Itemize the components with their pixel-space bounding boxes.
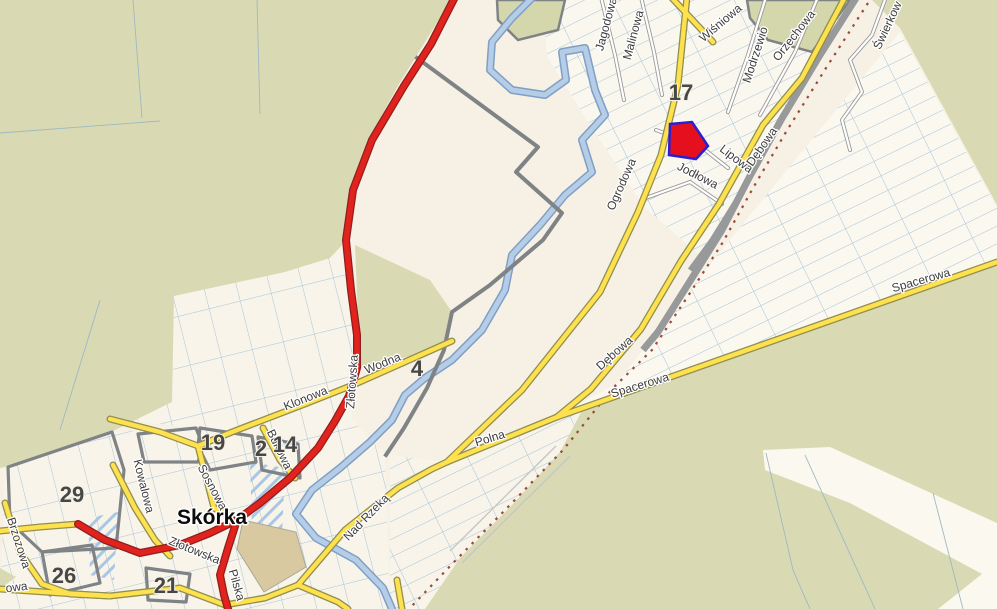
area-number-21: 21 — [154, 573, 178, 598]
area-number-2: 2 — [255, 436, 267, 461]
area-number-19: 19 — [201, 430, 225, 455]
town-label: Skórka — [177, 506, 247, 529]
area-number-29: 29 — [60, 482, 84, 507]
map-svg: Jagodowa Malinowa Wiśniowa Modrzewio Orz… — [0, 0, 997, 609]
area-number-4: 4 — [411, 356, 424, 381]
area-number-17: 17 — [669, 80, 693, 105]
area-number-26: 26 — [52, 563, 76, 588]
map-canvas[interactable]: Jagodowa Malinowa Wiśniowa Modrzewio Orz… — [0, 0, 997, 609]
street-label-partial: owa — [5, 579, 29, 596]
area-number-14: 14 — [273, 432, 298, 457]
